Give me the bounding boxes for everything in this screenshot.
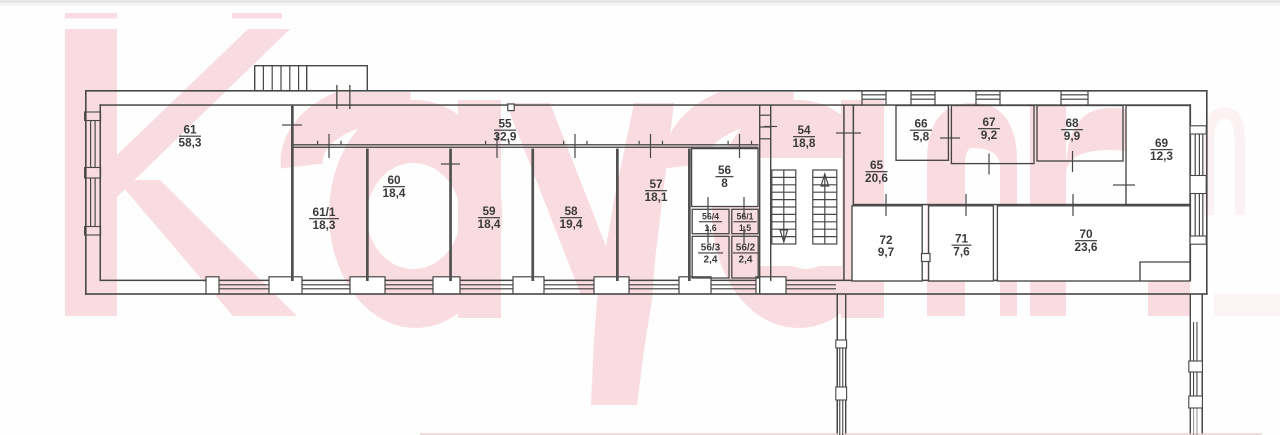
svg-text:54: 54: [797, 123, 811, 137]
svg-text:66: 66: [914, 117, 928, 131]
svg-text:55: 55: [498, 117, 512, 131]
svg-text:2,4: 2,4: [704, 255, 718, 266]
svg-text:9,9: 9,9: [1064, 129, 1081, 143]
svg-text:65: 65: [870, 158, 884, 172]
svg-text:7,6: 7,6: [953, 245, 970, 259]
svg-text:68: 68: [1065, 116, 1079, 130]
svg-text:23,6: 23,6: [1075, 240, 1098, 254]
svg-text:18,1: 18,1: [645, 190, 668, 204]
svg-text:57: 57: [649, 177, 663, 191]
svg-text:5,8: 5,8: [913, 130, 930, 144]
svg-text:8: 8: [721, 176, 728, 190]
svg-text:56/2: 56/2: [736, 243, 756, 254]
svg-text:60: 60: [387, 173, 401, 187]
svg-text:19,4: 19,4: [560, 217, 583, 231]
svg-text:58,3: 58,3: [179, 136, 202, 150]
svg-text:32,9: 32,9: [494, 130, 517, 144]
svg-text:9,2: 9,2: [981, 128, 998, 142]
svg-text:56/3: 56/3: [701, 243, 721, 254]
svg-text:56: 56: [718, 163, 732, 177]
svg-text:1,6: 1,6: [704, 223, 716, 233]
svg-text:59: 59: [482, 204, 496, 218]
svg-text:69: 69: [1155, 136, 1169, 150]
svg-text:71: 71: [955, 232, 969, 246]
svg-text:18,4: 18,4: [478, 217, 501, 231]
svg-text:9,7: 9,7: [878, 245, 895, 259]
svg-text:18,4: 18,4: [383, 186, 406, 200]
svg-text:1,5: 1,5: [739, 223, 751, 233]
svg-text:20,6: 20,6: [865, 171, 888, 185]
svg-text:56/4: 56/4: [702, 212, 719, 222]
svg-text:18,8: 18,8: [793, 136, 816, 150]
svg-text:2,4: 2,4: [739, 255, 753, 266]
svg-text:67: 67: [982, 115, 996, 129]
svg-text:58: 58: [564, 204, 578, 218]
svg-text:70: 70: [1079, 227, 1093, 241]
svg-text:12,3: 12,3: [1150, 149, 1173, 163]
svg-text:61: 61: [183, 123, 197, 137]
svg-text:18,3: 18,3: [313, 218, 336, 232]
svg-text:56/1: 56/1: [736, 212, 753, 222]
svg-text:61/1: 61/1: [313, 205, 336, 219]
